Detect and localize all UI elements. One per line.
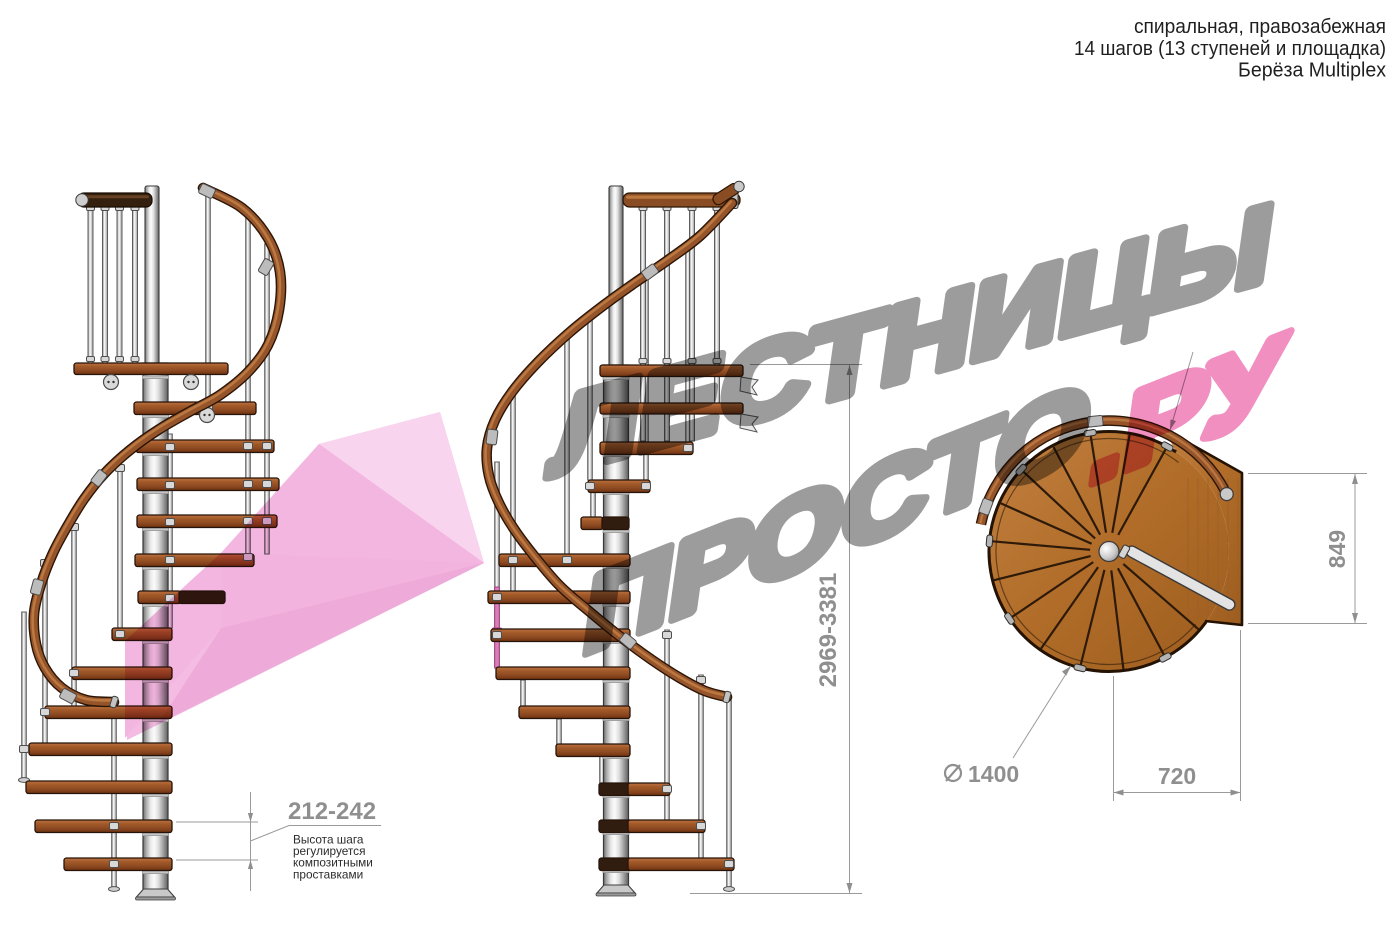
svg-text:14 шагов (13 ступеней и площад: 14 шагов (13 ступеней и площадка) — [1074, 38, 1386, 60]
svg-text:720: 720 — [1158, 763, 1196, 789]
svg-text:1400: 1400 — [968, 761, 1019, 787]
svg-text:2969-3381: 2969-3381 — [815, 573, 842, 688]
svg-text:спиральная, правозабежная: спиральная, правозабежная — [1134, 16, 1386, 38]
svg-text:849: 849 — [1324, 530, 1350, 568]
svg-text:212-242: 212-242 — [288, 798, 376, 825]
svg-text:Берёза Multiplex: Берёза Multiplex — [1238, 60, 1386, 82]
svg-text:проставками: проставками — [293, 867, 363, 881]
